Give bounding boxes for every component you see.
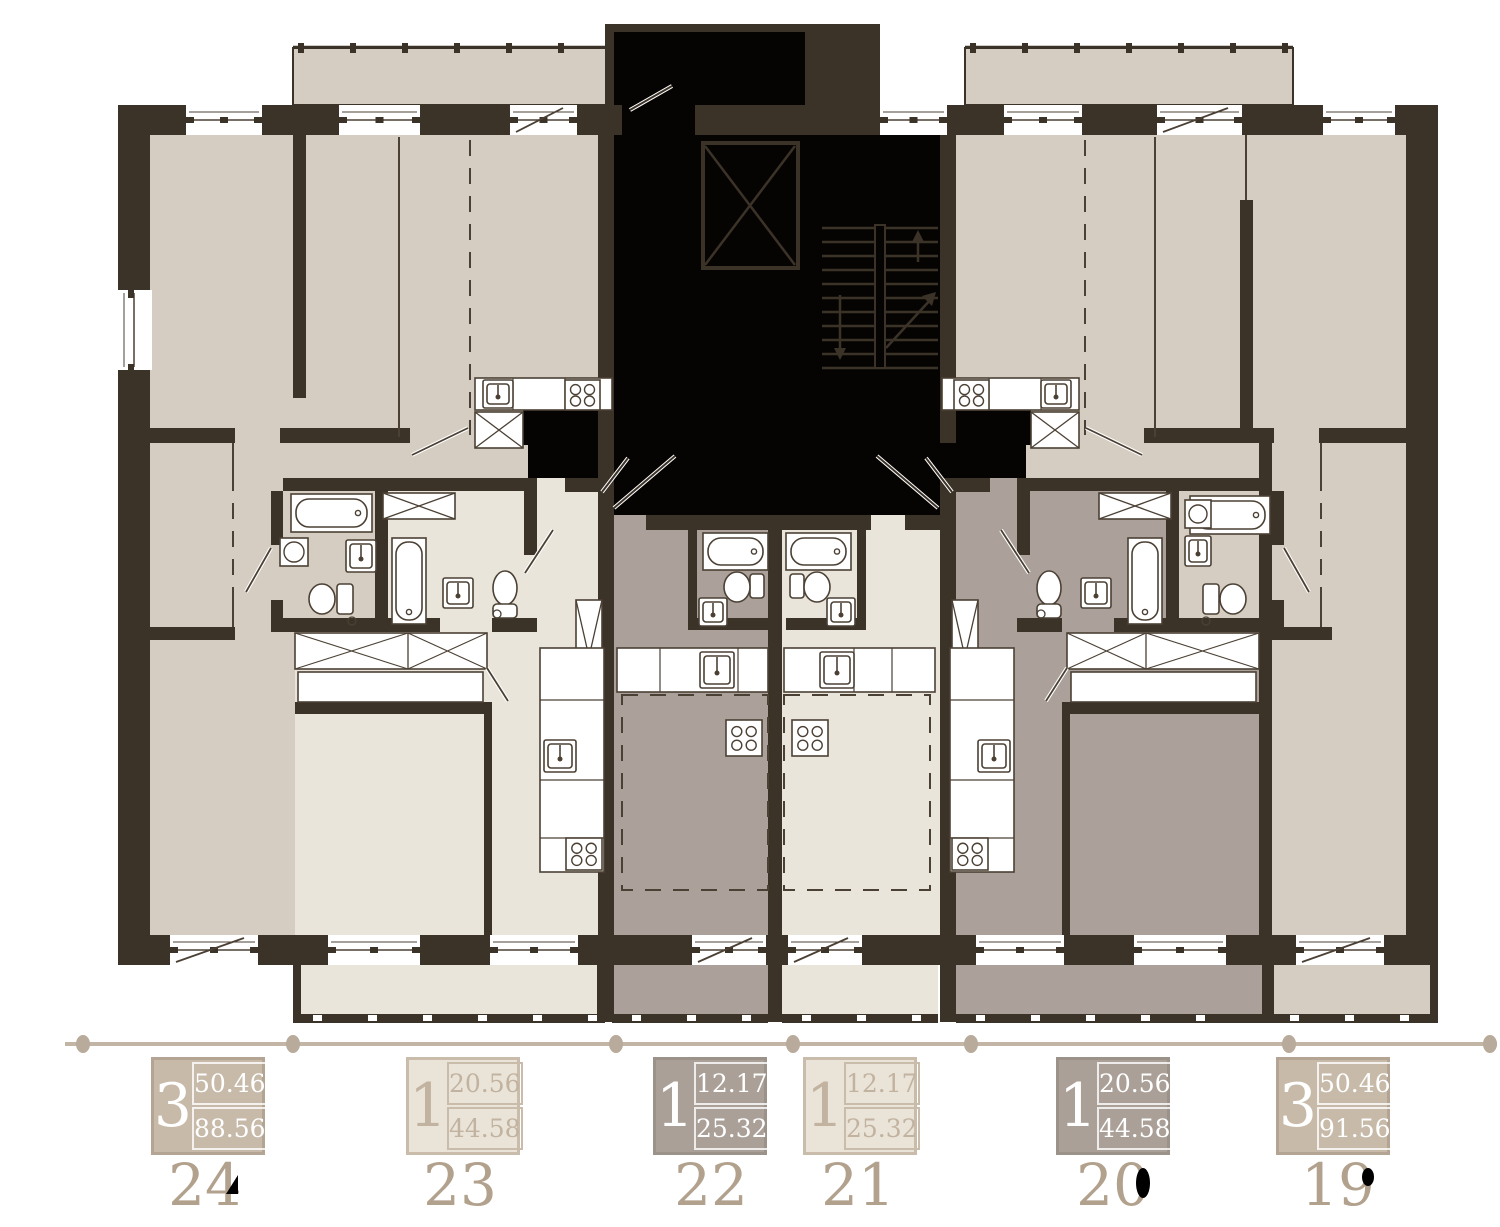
area-living: 50.46	[1317, 1062, 1393, 1105]
digit-counter-artifact	[1362, 1168, 1374, 1186]
toilet-icon	[724, 572, 750, 602]
toilet-icon	[309, 584, 335, 614]
stove-icon	[566, 838, 602, 870]
bathtub-icon	[296, 499, 367, 527]
room-count: 1	[808, 1062, 842, 1150]
floor-plan-page: 3 50.46 88.56 1 20.56 44.58 1 12.17 25.3…	[0, 0, 1500, 1227]
apartment-card-24: 3 50.46 88.56	[151, 1057, 265, 1155]
apartment-card-20: 1 20.56 44.58	[1056, 1057, 1170, 1155]
axis-dot	[1483, 1035, 1497, 1053]
toilet-icon	[804, 572, 830, 602]
axis-dot	[786, 1035, 800, 1053]
floor-plan-drawing	[0, 0, 1500, 1227]
area-living: 12.17	[844, 1062, 920, 1105]
apartment-card-19: 3 50.46 91.56	[1276, 1057, 1390, 1155]
axis-dot	[964, 1035, 978, 1053]
toilet-icon	[790, 574, 804, 598]
bathtub-icon	[708, 538, 763, 565]
axis-dot	[286, 1035, 300, 1053]
apartment-number-20: 20	[1053, 1156, 1173, 1214]
apartment-card-21: 1 12.17 25.32	[803, 1057, 917, 1155]
digit-counter-artifact	[226, 1175, 238, 1194]
axis-dot	[609, 1035, 623, 1053]
room-count: 3	[1281, 1062, 1315, 1150]
area-total: 44.58	[1097, 1107, 1173, 1150]
area-living: 12.17	[694, 1062, 770, 1105]
area-total: 91.56	[1317, 1107, 1393, 1150]
toilet-icon	[337, 584, 353, 614]
axis-dot	[1282, 1035, 1296, 1053]
bathtub-icon	[1132, 542, 1158, 620]
apartment-number-22: 22	[651, 1156, 771, 1214]
stove-icon	[954, 380, 989, 410]
bathtub-icon	[396, 542, 422, 620]
kitchen-counter	[784, 648, 935, 692]
room-count: 1	[411, 1062, 445, 1150]
room-count: 3	[156, 1062, 190, 1150]
apartment-number-19: 19	[1278, 1156, 1398, 1214]
toilet-icon	[1220, 584, 1246, 614]
toilet-icon	[493, 571, 517, 605]
toilet-icon	[1037, 571, 1061, 605]
axis-dot	[76, 1035, 90, 1053]
area-total: 44.58	[447, 1107, 523, 1150]
apartment-card-22: 1 12.17 25.32	[653, 1057, 767, 1155]
area-living: 50.46	[192, 1062, 268, 1105]
toilet-icon	[493, 604, 517, 618]
toilet-icon	[1037, 604, 1061, 618]
stove-icon	[792, 720, 828, 756]
room-count: 1	[658, 1062, 692, 1150]
area-total: 88.56	[192, 1107, 268, 1150]
apartment-number-24: 24	[145, 1156, 265, 1214]
kitchen-counter	[617, 648, 768, 692]
apartment-number-23: 23	[400, 1156, 520, 1214]
toilet-icon	[1203, 584, 1219, 614]
area-living: 20.56	[1097, 1062, 1173, 1105]
cabinet	[1071, 672, 1256, 702]
area-total: 25.32	[694, 1107, 770, 1150]
stove-icon	[726, 720, 762, 756]
elevator-icon	[703, 143, 798, 268]
area-living: 20.56	[447, 1062, 523, 1105]
toilet-icon	[750, 574, 764, 598]
cabinet	[298, 672, 483, 702]
stove-icon	[952, 838, 988, 870]
bathtub-icon	[791, 538, 846, 565]
room-count: 1	[1061, 1062, 1095, 1150]
apartment-number-21: 21	[798, 1156, 918, 1214]
site-axis-line	[65, 1035, 1497, 1053]
stove-icon	[565, 380, 600, 410]
apartment-card-23: 1 20.56 44.58	[406, 1057, 520, 1155]
digit-counter-artifact	[1136, 1168, 1150, 1198]
area-total: 25.32	[844, 1107, 920, 1150]
